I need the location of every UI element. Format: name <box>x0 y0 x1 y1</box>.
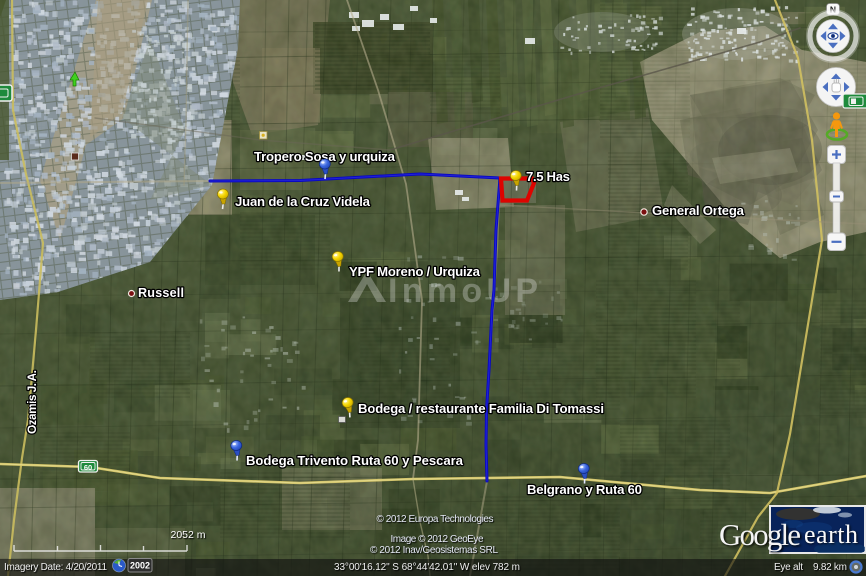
svg-text:Ozamis J. A.: Ozamis J. A. <box>25 370 39 434</box>
svg-text:2002: 2002 <box>130 561 150 571</box>
svg-text:2052 m: 2052 m <box>170 529 205 541</box>
svg-text:7.5 Has: 7.5 Has <box>526 169 570 184</box>
svg-text:General Ortega: General Ortega <box>652 203 745 218</box>
svg-text:Russell: Russell <box>138 286 184 300</box>
svg-text:Google: Google <box>719 517 801 552</box>
svg-text:9.82 km: 9.82 km <box>813 562 847 573</box>
svg-text:Juan de la Cruz Videla: Juan de la Cruz Videla <box>235 194 371 209</box>
svg-text:© 2012 Inav/Geosistemas SRL: © 2012 Inav/Geosistemas SRL <box>370 545 498 556</box>
svg-text:60: 60 <box>84 463 92 472</box>
svg-text:33°00'16.12" S 68°44'42.01": 33°00'16.12" S 68°44'42.01" W elev 782 m <box>334 562 520 573</box>
svg-text:Belgrano y Ruta 60: Belgrano y Ruta 60 <box>527 482 642 497</box>
svg-text:Bodega / restaurante Familia D: Bodega / restaurante Familia Di Tomassi <box>358 401 604 416</box>
svg-text:Imagery Date: 4/20/2011: Imagery Date: 4/20/2011 <box>4 562 107 573</box>
svg-text:Bodega Trivento Ruta 60 y Pesc: Bodega Trivento Ruta 60 y Pescara <box>246 453 464 468</box>
svg-text:YPF Moreno / Urquiza: YPF Moreno / Urquiza <box>349 264 481 279</box>
svg-text:Eye alt: Eye alt <box>774 562 803 573</box>
svg-text:© 2012 Europa Technologies: © 2012 Europa Technologies <box>377 514 494 525</box>
svg-text:earth: earth <box>804 520 858 549</box>
svg-text:Image © 2012 GeoEye: Image © 2012 GeoEye <box>391 534 484 545</box>
